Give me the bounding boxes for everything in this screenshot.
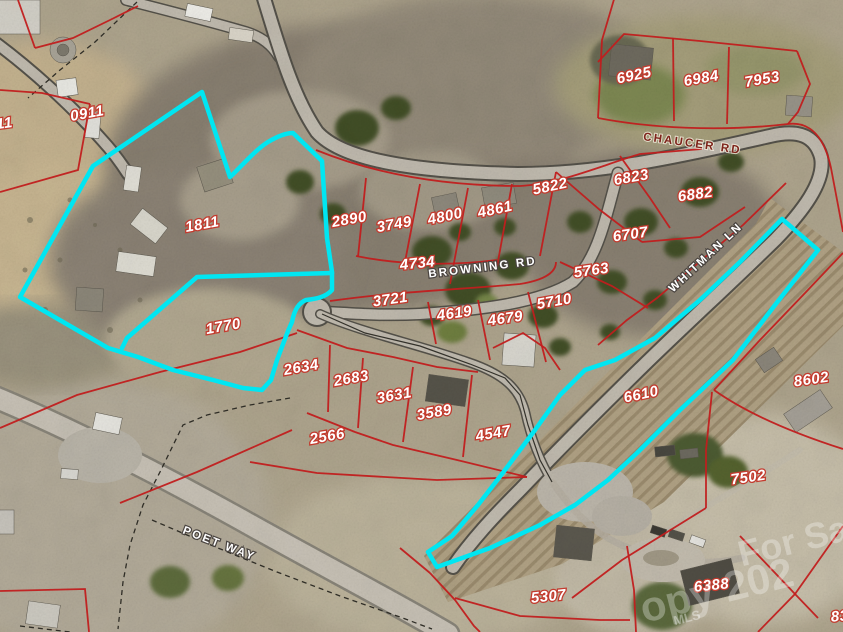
parcel-map-canvas[interactable]: 0911 11 1811 1770 2890 3749 4800 4861 58… — [0, 0, 843, 632]
photo-grain-overlay — [0, 0, 843, 632]
gis-parcel-map-window: 0911 11 1811 1770 2890 3749 4800 4861 58… — [0, 0, 843, 632]
parcel-label: 83 — [830, 607, 843, 625]
parcel-label: 11 — [0, 114, 14, 133]
